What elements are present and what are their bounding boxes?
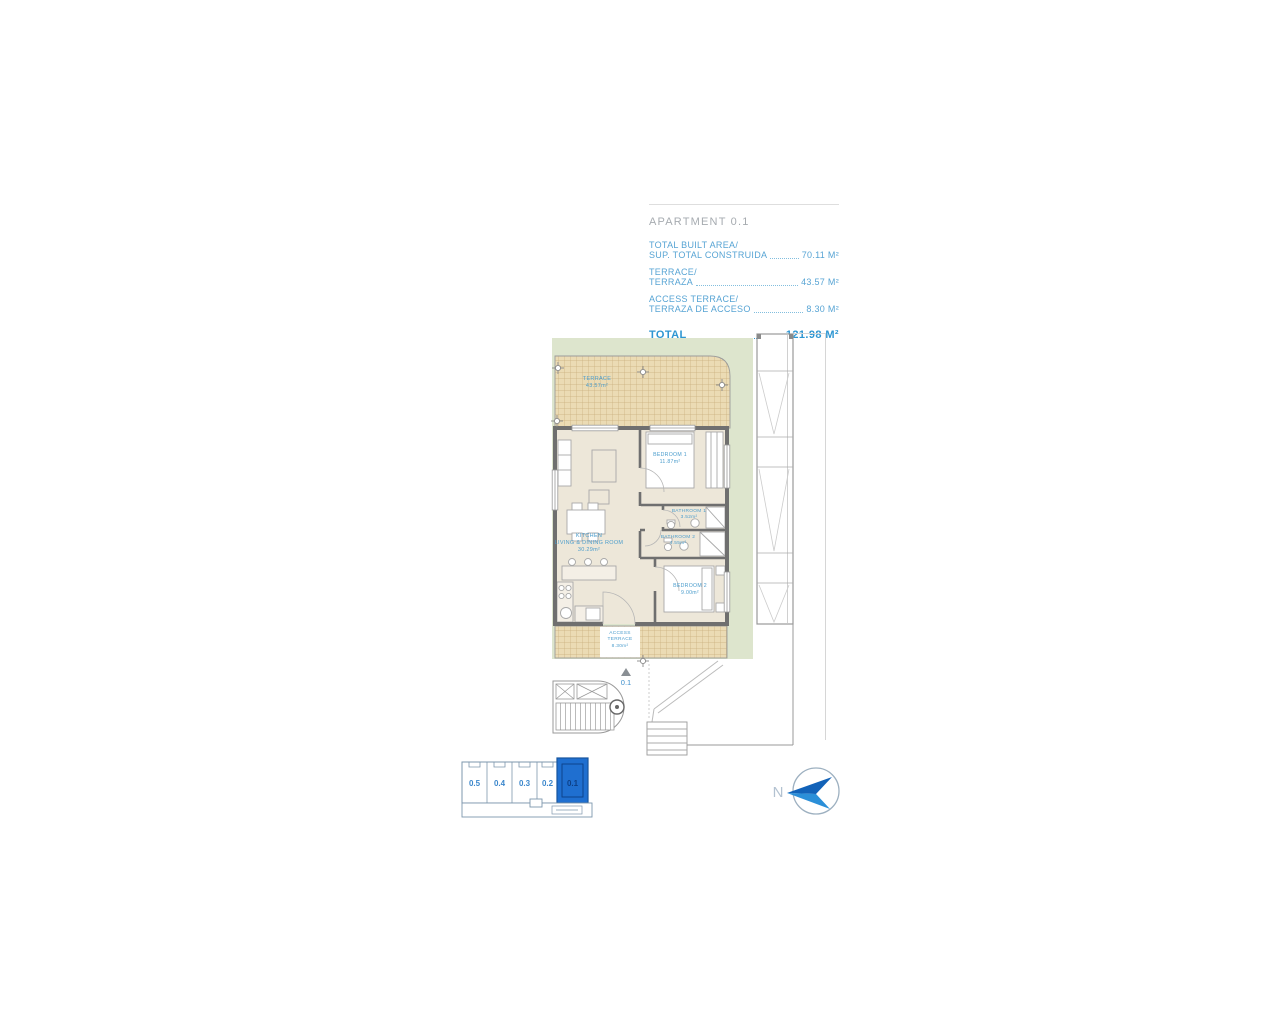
area-row-line2: SUP. TOTAL CONSTRUIDA 70.11 M² xyxy=(649,251,839,261)
area-row-label-es: SUP. TOTAL CONSTRUIDA xyxy=(649,251,767,261)
area-row-terrace: TERRACE/ TERRAZA 43.57 M² xyxy=(649,268,839,287)
key-plan-unit-03: 0.3 xyxy=(519,779,531,788)
living-area: 30.29m² xyxy=(578,547,600,553)
bedroom1-area: 11.87m² xyxy=(660,459,681,465)
dot-leader xyxy=(754,312,804,313)
key-plan-unit-02: 0.2 xyxy=(542,779,554,788)
area-row-label-es: TERRAZA DE ACCESO xyxy=(649,305,751,315)
area-row-value: 8.30 M² xyxy=(806,305,839,315)
access-terrace-area xyxy=(555,626,727,658)
bathroom1-label: BATHROOM 1 xyxy=(672,508,706,514)
parcel-boundary-lines xyxy=(793,333,826,740)
north-label: N xyxy=(773,784,784,801)
apartment-title: APARTMENT 0.1 xyxy=(649,216,839,228)
dot-leader xyxy=(696,285,798,286)
terrace-label: TERRACE xyxy=(583,376,611,382)
key-plan-unit-05: 0.5 xyxy=(469,779,481,788)
access-terrace-label-line1: ACCESS xyxy=(609,630,631,636)
bedroom1-furniture xyxy=(646,432,723,488)
floor-plan-page: APARTMENT 0.1 TOTAL BUILT AREA/ SUP. TOT… xyxy=(0,0,1280,1024)
key-plan: 0.5 0.4 0.3 0.2 0.1 xyxy=(462,758,592,817)
area-row-line2: TERRAZA 43.57 M² xyxy=(649,278,839,288)
north-compass: N xyxy=(773,768,839,814)
bathroom2-label: BATHROOM 2 xyxy=(661,534,695,540)
key-plan-unit-04: 0.4 xyxy=(494,779,506,788)
terrace-area: 43.57m² xyxy=(586,383,608,389)
dot-leader xyxy=(770,258,798,259)
area-row-line2: TERRAZA DE ACCESO 8.30 M² xyxy=(649,305,839,315)
area-row-built: TOTAL BUILT AREA/ SUP. TOTAL CONSTRUIDA … xyxy=(649,241,839,260)
bathroom2-area: 4.55m² xyxy=(670,540,687,546)
living-label-line2: LIVING & DINING ROOM xyxy=(555,540,624,546)
unit-marker-label: 0.1 xyxy=(621,678,631,687)
area-summary-panel: APARTMENT 0.1 TOTAL BUILT AREA/ SUP. TOT… xyxy=(649,204,839,341)
bedroom1-label: BEDROOM 1 xyxy=(653,452,687,458)
bedroom2-area: 9.00m² xyxy=(681,590,699,596)
bedroom2-label: BEDROOM 2 xyxy=(673,583,707,589)
area-row-value: 43.57 M² xyxy=(801,278,839,288)
external-stairs xyxy=(553,681,624,733)
area-row-value: 70.11 M² xyxy=(802,251,839,261)
entrance-steps xyxy=(647,722,687,755)
area-row-label-es: TERRAZA xyxy=(649,278,693,288)
top-divider-line xyxy=(649,204,839,205)
area-row-access-terrace: ACCESS TERRACE/ TERRAZA DE ACCESO 8.30 M… xyxy=(649,295,839,314)
corridor-strip xyxy=(757,334,793,624)
floor-plan-drawing: 0.1 TERRACE 43.57m² BEDROOM 1 11.87m² BA… xyxy=(450,325,850,850)
access-terrace-area: 8.30m² xyxy=(612,643,629,649)
key-plan-unit-01: 0.1 xyxy=(567,779,579,788)
living-label-line1: KITCHEN xyxy=(576,533,602,539)
site-path-lines xyxy=(649,661,723,722)
unit-entrance-marker: 0.1 xyxy=(621,668,631,687)
terrace-area xyxy=(555,356,730,428)
access-terrace-label-line2: TERRACE xyxy=(607,636,632,642)
bathroom1-area: 3.52m² xyxy=(681,514,698,520)
